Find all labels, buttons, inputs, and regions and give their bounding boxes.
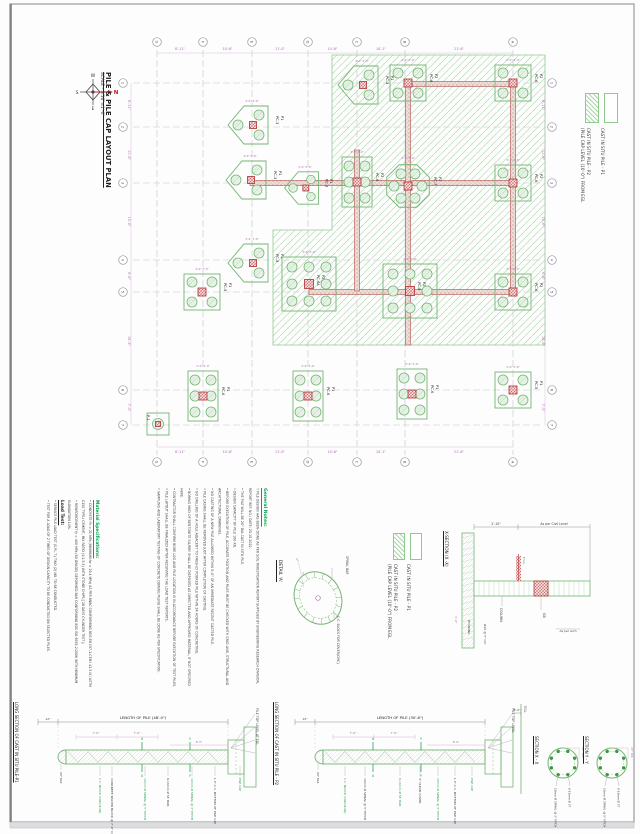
svg-text:X: X <box>372 737 375 741</box>
long-section-pile-p2: LENGTH OF PILE (30'-6")12"7'-6"7'-6"XXYY… <box>295 704 527 824</box>
svg-text:B: B <box>403 41 408 44</box>
x-section-title: X-SECTION (X -X) <box>444 531 449 597</box>
legend-swatch-p1-plain <box>604 93 618 123</box>
svg-text:11'-0": 11'-0" <box>275 47 285 51</box>
svg-text:P2: P2 <box>321 275 325 279</box>
svg-text:10'-6": 10'-6" <box>328 47 338 51</box>
svg-text:PC-6: PC-6 <box>534 74 538 83</box>
general-notes-heading: General Notes: <box>260 488 268 690</box>
svg-text:D: D <box>306 461 311 464</box>
grade-beam <box>250 181 513 186</box>
svg-text:As per Civil Level: As per Civil Level <box>540 522 567 526</box>
svg-text:X: X <box>141 737 144 741</box>
svg-text:C.C. BLOCK (CIRCULAR): C.C. BLOCK (CIRCULAR) <box>98 778 102 813</box>
svg-text:8-16mm Ø ST: 8-16mm Ø ST <box>568 788 573 808</box>
long-section-p1-title: LONG SECTION OF CAST IN SITU PILE-P1 <box>14 702 19 830</box>
svg-text:8'-0": 8'-0" <box>196 740 203 744</box>
drawing-sheet: { "sheet": { "title": "PILE & PILE CAP L… <box>0 0 640 834</box>
svg-text:10'-6": 10'-6" <box>223 450 233 454</box>
svg-text:S: S <box>76 90 79 96</box>
svg-text:PC-3: PC-3 <box>275 116 279 124</box>
general-note-item: • DESIGN CAPACITY OF PILE 100 KN. <box>230 488 238 690</box>
svg-text:8-16mm Ø ST. BAR: 8-16mm Ø ST. BAR <box>398 778 403 806</box>
svg-text:P1: P1 <box>226 387 230 391</box>
svg-text:E: E <box>92 106 95 112</box>
legend-p2-line1: CAST IN SITU PILE - P2 <box>585 128 591 240</box>
svg-text:15'-6": 15'-6" <box>127 217 131 227</box>
svg-text:P2: P2 <box>434 74 438 78</box>
load-test-item: • TEST FOR A LOAD OF 2 TIMES OF DESIGN C… <box>44 500 51 688</box>
svg-text:F.G.L.: F.G.L. <box>522 557 526 565</box>
svg-text:3'-0" 3'-0": 3'-0" 3'-0" <box>506 158 520 162</box>
svg-text:P-1: P-1 <box>146 415 150 421</box>
load-test-item: • SERVICE PILE LOAD TEST (S.P.L.T.) TWO … <box>51 500 58 688</box>
svg-text:PC-6A: PC-6A <box>316 275 320 286</box>
svg-text:3'-0" 3'-0": 3'-0" 3'-0" <box>350 150 364 154</box>
svg-text:PILE CAP: PILE CAP <box>470 778 474 791</box>
legend2-label-p2: CAST IN SITU PILE - P2 (PILE CAP LEVEL (… <box>386 564 398 682</box>
svg-text:C: C <box>355 461 360 464</box>
legend2-swatch-p2-hatched <box>393 533 405 560</box>
legend-swatch-p2-hatched <box>585 93 599 123</box>
svg-text:6'-6": 6'-6" <box>127 272 131 280</box>
svg-text:8-16mm Ø ST: 8-16mm Ø ST <box>617 788 622 808</box>
legend2-p2-line1: CAST IN SITU PILE - P2 <box>392 564 398 682</box>
general-note-item: • CONTRACTOR SHALL CONFIRM BORE LOG AND … <box>169 488 177 690</box>
svg-text:GB: GB <box>542 613 546 618</box>
svg-text:3'-0" 3'-0": 3'-0" 3'-0" <box>302 250 316 254</box>
svg-text:8'-11": 8'-11" <box>541 100 545 110</box>
legend-label-p1: CAST IN SITU PILE - P1 <box>600 128 605 223</box>
svg-text:4" CLEAR COVER: 4" CLEAR COVER <box>418 778 422 803</box>
svg-text:10'-6": 10'-6" <box>328 450 338 454</box>
svg-text:LENGTH OF PILE (30'-6"): LENGTH OF PILE (30'-6") <box>377 715 424 720</box>
svg-text:3'-0" 3'-0": 3'-0" 3'-0" <box>401 58 415 62</box>
section-yy-title: SECTION Y - Y <box>584 736 589 800</box>
svg-text:3'-0" 3'-0": 3'-0" 3'-0" <box>301 364 315 368</box>
svg-text:3'-0" 3'-0": 3'-0" 3'-0" <box>196 364 210 368</box>
svg-text:P2: P2 <box>380 173 384 177</box>
legend2-p2-line2: (PILE CAP LEVEL (10'-0") FROM EGL <box>386 564 392 682</box>
svg-text:W: W <box>91 73 96 79</box>
load-test-heading: Load Test: <box>58 500 65 688</box>
general-note-item: • BEFORE EXECUTION OF PILE, ACCURATE POS… <box>215 488 230 690</box>
svg-text:PILE CAP: PILE CAP <box>238 778 242 791</box>
svg-text:7'-6": 7'-6" <box>349 731 357 735</box>
svg-text:F: F <box>201 41 206 43</box>
svg-text:PC-3: PC-3 <box>275 254 279 262</box>
svg-text:P1: P1 <box>329 179 333 183</box>
general-note-item: • BORING MUD OF BENTONITE SLURRY SHALL B… <box>177 488 192 690</box>
svg-text:10'-1": 10'-1" <box>376 47 386 51</box>
general-note-item: • THE PILE WILL BE 20" DIA CAST IN SITU … <box>238 488 246 690</box>
pile-cap-PC-3: P1PC-33'-0" 3'-0" <box>226 154 282 199</box>
svg-text:PC-5: PC-5 <box>534 381 538 389</box>
general-note-item: • SAMPLING AND LABORATORY TESTING OF CON… <box>154 488 162 690</box>
grade-beam <box>355 150 360 291</box>
svg-text:P1: P1 <box>228 283 232 287</box>
svg-text:3'-0" 3'-0": 3'-0" 3'-0" <box>245 237 259 241</box>
svg-text:P2: P2 <box>438 177 442 181</box>
svg-text:11'-6": 11'-6" <box>127 150 131 160</box>
svg-text:D: D <box>306 41 311 44</box>
general-note-item: • NO CASTING OF A NEW PILE ALLOWED WITHI… <box>207 488 215 690</box>
svg-text:C.C. BLOCK FOR COVER(CIRC): C.C. BLOCK FOR COVER(CIRC) <box>336 616 340 664</box>
svg-text:3'-0" 3'-0": 3'-0" 3'-0" <box>243 154 257 158</box>
svg-text:21'-6": 21'-6" <box>454 450 464 454</box>
grade-beam <box>511 84 516 292</box>
svg-text:PC-6: PC-6 <box>534 174 538 183</box>
pile-cap-PC-6: P1PC-63'-0" 3'-0" <box>188 364 230 421</box>
svg-text:3'-0" 3'-0": 3'-0" 3'-0" <box>245 99 259 103</box>
material-spec-item: • REINFORCEMENT fy = 400 MPa (60 GRADE) … <box>65 500 79 688</box>
x-section-drawing: F.G.L.2'-10"As per Civil LevelCOLUMNGBØ1… <box>454 522 590 648</box>
svg-text:3'-0" 3'-0": 3'-0" 3'-0" <box>403 257 417 261</box>
svg-text:P2: P2 <box>539 74 543 78</box>
svg-text:SPIRAL BAR: SPIRAL BAR <box>345 556 349 575</box>
svg-text:Y: Y <box>189 737 192 741</box>
svg-text:3'-0" 3'-0": 3'-0" 3'-0" <box>195 267 209 271</box>
svg-text:PC-6: PC-6 <box>534 283 538 292</box>
pile-cap-PC-5: P1PC-53'-0" 3'-0" <box>184 267 232 310</box>
svg-text:PC-6: PC-6 <box>326 387 330 396</box>
svg-text:L 3"-C.C. BOTTOM OF PILE CAP: L 3"-C.C. BOTTOM OF PILE CAP <box>453 778 457 824</box>
svg-text:20" DIA: 20" DIA <box>59 772 63 784</box>
section-xx-title: SECTION X - X <box>534 736 539 800</box>
svg-text:PC-6: PC-6 <box>430 385 434 394</box>
svg-text:P1: P1 <box>435 385 439 389</box>
material-specs-heading: Material Specifications: <box>93 500 100 688</box>
svg-text:19'-6": 19'-6" <box>127 336 131 346</box>
pile-cap-PC-6: P1PC-63'-0" 3'-0" <box>397 362 439 419</box>
load-test-list: • SERVICE PILE LOAD TEST (S.P.L.T.) TWO … <box>44 500 58 688</box>
svg-text:8'-11": 8'-11" <box>175 47 185 51</box>
general-note-item: • PILE CASING SHALL BE REMOVED JUST AFTE… <box>200 488 208 690</box>
svg-text:C.C. BLOCK (CIRCULAR): C.C. BLOCK (CIRCULAR) <box>343 778 347 813</box>
svg-text:N: N <box>114 90 119 96</box>
svg-text:PC-3: PC-3 <box>385 76 389 84</box>
svg-text:Y: Y <box>420 737 423 741</box>
svg-text:PC-9: PC-9 <box>417 282 421 291</box>
svg-text:CONCRETE SPACER BLOCK @ 7'-6": CONCRETE SPACER BLOCK @ 7'-6" C/C <box>110 778 114 834</box>
general-note-item: • PILE DESIGN HAS BEEN DONE AS PER SOIL … <box>245 488 260 690</box>
svg-text:15'-6": 15'-6" <box>541 217 545 227</box>
svg-text:3'-0": 3'-0" <box>454 616 458 624</box>
svg-text:8'-11": 8'-11" <box>175 450 185 454</box>
svg-text:8'-0": 8'-0" <box>453 740 460 744</box>
svg-text:HOOKING: HOOKING <box>467 620 471 635</box>
svg-text:G: G <box>155 41 160 44</box>
svg-text:20" DIA: 20" DIA <box>316 772 320 784</box>
svg-text:8-16mm Ø ST. BAR: 8-16mm Ø ST. BAR <box>166 778 171 806</box>
svg-text:10mm Ø SPIRAL @ 5" PITCH: 10mm Ø SPIRAL @ 5" PITCH <box>603 788 608 827</box>
svg-text:PC-3: PC-3 <box>273 171 277 179</box>
svg-text:3'-0" 3'-0": 3'-0" 3'-0" <box>298 165 312 169</box>
pile-cap-PC-6: P1PC-63'-0" 3'-0" <box>293 364 335 421</box>
svg-text:C: C <box>355 41 360 44</box>
legend2-label-p1: CAST IN SITU PILE - P1 <box>406 564 411 659</box>
general-notes-list: • PILE DESIGN HAS BEEN DONE AS PER SOIL … <box>154 488 260 690</box>
svg-text:7'-3": 7'-3" <box>127 404 131 412</box>
svg-text:12": 12" <box>302 717 308 721</box>
material-spec-item: • CONCRETE f'c = 21 MPa (MINIMUM fcr = 2… <box>79 500 93 688</box>
detail-a-title: DETAIL 'A' <box>277 560 282 618</box>
svg-text:10'-1": 10'-1" <box>376 450 386 454</box>
svg-text:7'-3": 7'-3" <box>541 404 545 412</box>
svg-text:11'-0": 11'-0" <box>275 450 285 454</box>
svg-text:7'-6": 7'-6" <box>133 731 141 735</box>
svg-text:11'-6": 11'-6" <box>541 150 545 160</box>
svg-text:P2: P2 <box>539 174 543 178</box>
svg-text:P1: P1 <box>280 116 284 120</box>
svg-text:As per arch: As per arch <box>559 629 576 633</box>
svg-text:10mm Ø SPIRAL @ 3" PITCH: 10mm Ø SPIRAL @ 3" PITCH <box>554 788 559 827</box>
svg-text:P2: P2 <box>539 283 543 287</box>
cad-drawing-canvas: GGFFEEDDCCBBAA112233445566778'-11"8'-11"… <box>0 0 640 834</box>
general-note-item: • PILE LAYOUT SHALL BE FINALIZED AFTER R… <box>162 488 170 690</box>
svg-text:A: A <box>511 41 516 44</box>
pile-cap-P-1: P-1 <box>146 413 169 435</box>
pile-cap-PC-3: P1PC-33'-0" 3'-0" <box>228 99 284 144</box>
svg-text:6'-6": 6'-6" <box>541 272 545 280</box>
svg-text:A: A <box>511 461 516 464</box>
legend-label-p2: CAST IN SITU PILE - P2 (PILE CAP LEVEL (… <box>579 128 591 240</box>
svg-text:PC-6: PC-6 <box>429 74 433 83</box>
long-section-p2-title: LONG SECTION OF CAST IN SITU PILE - P2 <box>274 702 279 832</box>
legend2-swatch-p1-plain <box>410 533 422 560</box>
material-specs-list: • CONCRETE f'c = 21 MPa (MINIMUM fcr = 2… <box>65 500 93 688</box>
svg-text:G: G <box>155 461 160 464</box>
svg-text:3'-0" 3'-0": 3'-0" 3'-0" <box>506 365 520 369</box>
svg-text:10mm Ø SPIRAL @ 3" PITCH: 10mm Ø SPIRAL @ 3" PITCH <box>436 778 441 820</box>
svg-text:19'-6": 19'-6" <box>541 336 545 346</box>
pile-cap-PC-5: P1PC-53'-0" 3'-0" <box>495 365 543 408</box>
svg-text:L 3"-C.C. BOTTOM OF PILE CAP: L 3"-C.C. BOTTOM OF PILE CAP <box>213 778 217 824</box>
svg-text:3'-0" 3'-0": 3'-0" 3'-0" <box>506 58 520 62</box>
svg-text:P1: P1 <box>539 381 543 385</box>
svg-text:3'-0" 3'-0": 3'-0" 3'-0" <box>405 362 419 366</box>
north-arrow-compass: NWES <box>76 73 119 112</box>
general-note-item: • NO DRILLING OF A HOLE ADJACENT TO FRES… <box>192 488 200 690</box>
section-yy-circle: 10mm Ø SPIRAL @ 5" PITCH8-16mm Ø ST20" D… <box>597 747 634 827</box>
material-specs-block: Material Specifications: • CONCRETE f'c … <box>56 500 100 688</box>
svg-text:PC-5: PC-5 <box>223 283 227 291</box>
svg-text:10mm Ø SPIRAL @ 5" PITCH: 10mm Ø SPIRAL @ 5" PITCH <box>363 778 368 820</box>
svg-text:PILE TOP LEVEL AT EGL: PILE TOP LEVEL AT EGL <box>255 708 259 745</box>
svg-text:10'-6": 10'-6" <box>223 47 233 51</box>
svg-text:12": 12" <box>45 717 51 721</box>
svg-text:PC-6: PC-6 <box>375 173 379 182</box>
grade-beam <box>408 82 513 87</box>
svg-text:X: X <box>372 774 375 778</box>
svg-text:P1: P1 <box>278 171 282 175</box>
svg-text:PC-3: PC-3 <box>324 179 328 187</box>
svg-text:3'-0" 3'-0": 3'-0" 3'-0" <box>506 267 520 271</box>
svg-text:3'-0" 3'-0": 3'-0" 3'-0" <box>355 59 369 63</box>
svg-text:PC-6: PC-6 <box>221 387 225 396</box>
svg-text:COLUMN: COLUMN <box>499 608 503 622</box>
svg-text:P1: P1 <box>331 387 335 391</box>
svg-text:B: B <box>403 461 408 464</box>
svg-text:P1: P1 <box>390 76 394 80</box>
legend-p2-line2: (PILE CAP LEVEL (10'-0") FROM EGL <box>579 128 585 240</box>
svg-text:PC-7: PC-7 <box>433 177 437 185</box>
title-block: PILE & PILE CAP LAYOUT PLAN SCALE - 3/16… <box>99 72 112 222</box>
general-notes-block: General Notes: • PILE DESIGN HAS BEEN DO… <box>150 488 268 690</box>
svg-text:20" DIA: 20" DIA <box>630 747 634 758</box>
svg-text:F: F <box>201 461 206 463</box>
svg-text:P2: P2 <box>422 282 426 286</box>
svg-text:Ø10 @ 5" C/C: Ø10 @ 5" C/C <box>483 624 488 645</box>
svg-text:21'-6": 21'-6" <box>454 47 464 51</box>
svg-text:10mm Ø SPIRAL @ 3" PITCH: 10mm Ø SPIRAL @ 3" PITCH <box>190 778 195 820</box>
svg-text:5'-0": 5'-0" <box>513 708 521 712</box>
svg-text:EGL: EGL <box>523 706 527 713</box>
svg-text:10mm Ø SPIRAL @ 5" PITCH: 10mm Ø SPIRAL @ 5" PITCH <box>143 778 148 820</box>
svg-text:7'-6": 7'-6" <box>390 731 398 735</box>
detail-a-drawing: SPIRAL BARC.C. BLOCK FOR COVER(CIRC)3"5" <box>285 556 351 664</box>
svg-text:8'-11": 8'-11" <box>127 100 131 110</box>
pile-layout-plan: GGFFEEDDCCBBAA112233445566778'-11"8'-11"… <box>119 38 557 467</box>
svg-text:7'-6": 7'-6" <box>92 731 100 735</box>
svg-text:LENGTH OF PILE (48'-0"): LENGTH OF PILE (48'-0") <box>120 715 167 720</box>
section-xx-circle: 10mm Ø SPIRAL @ 3" PITCH8-16mm Ø ST20" D… <box>548 747 585 827</box>
svg-text:3'-0" 3'-0": 3'-0" 3'-0" <box>401 156 415 160</box>
page-title: PILE & PILE CAP LAYOUT PLAN <box>104 72 112 222</box>
long-section-pile-p1: LENGTH OF PILE (48'-0")12"7'-6"7'-6"XXYY… <box>38 708 259 834</box>
svg-text:2'-10": 2'-10" <box>491 522 501 526</box>
